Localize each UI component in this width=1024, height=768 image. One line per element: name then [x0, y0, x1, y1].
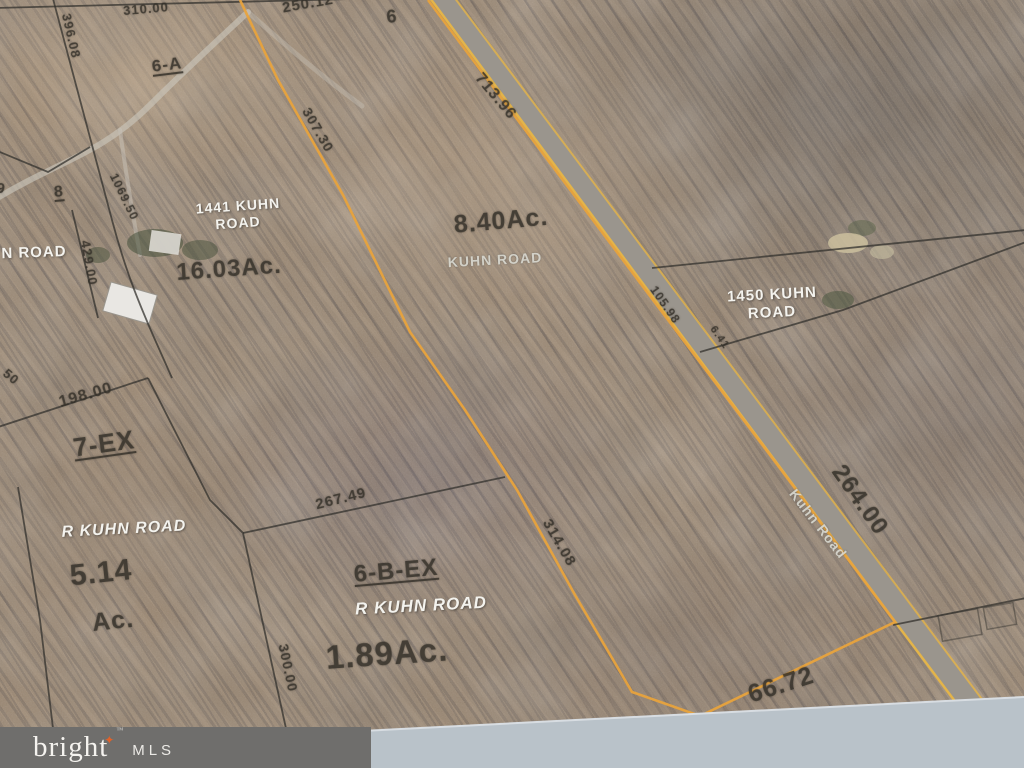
area-1-89-ac: 1.89Ac. [325, 632, 450, 675]
dim-250-12: 250.12 [281, 0, 335, 16]
dim-300-00: 300.00 [276, 643, 301, 694]
road-kuhn-road-label: Kuhn Road [786, 487, 849, 562]
road-n-road-left: N ROAD [1, 244, 67, 262]
dim-307-30: 307.30 [299, 105, 336, 155]
lot-6: 6 [386, 7, 399, 27]
dim-1069-50: 1069.50 [107, 172, 140, 223]
area-5-14: 5.14 [68, 554, 133, 592]
addr-1441-kuhn: 1441 KUHN [195, 196, 280, 217]
dim-310-00: 310.00 [123, 0, 170, 18]
dim-6-41: 6.41 [707, 324, 731, 351]
area-16-03-ac: 16.03Ac. [176, 253, 283, 285]
dim-105-98: 105.98 [648, 284, 683, 326]
addr-1441-road: ROAD [215, 214, 261, 232]
dim-198-00: 198.00 [57, 380, 114, 411]
road-r-kuhn-road-west: R KUHN ROAD [61, 518, 186, 541]
lot-9: 9 [0, 180, 7, 197]
map-labels: 310.00396.08250.1266-A713.96307.30981069… [0, 0, 1024, 768]
dim-66-72: 66.72 [745, 662, 817, 708]
brightmls-watermark: bright✦™ MLS [0, 727, 371, 768]
dim-429-00: 429.00 [78, 239, 99, 286]
sparkle-icon: ✦ [104, 733, 115, 747]
road-kuhn-center: KUHN ROAD [447, 250, 542, 270]
addr-1450-road: ROAD [748, 304, 797, 322]
mls-text: MLS [132, 742, 175, 759]
dim-267-49: 267.49 [314, 485, 368, 513]
dim-50: 50 [0, 366, 21, 387]
lot-6-a: 6-A [151, 54, 183, 75]
trademark-symbol: ™ [116, 726, 124, 734]
lot-7-ex: 7-EX [71, 426, 136, 462]
dim-713-96: 713.96 [471, 71, 519, 124]
road-r-kuhn-road-south: R KUHN ROAD [355, 594, 488, 619]
brightmls-logo: bright✦™ [33, 733, 124, 762]
area-5-14-ac: Ac. [91, 606, 135, 636]
plat-map-screenshot: 310.00396.08250.1266-A713.96307.30981069… [0, 0, 1024, 768]
dim-314-08: 314.08 [539, 517, 579, 570]
dim-396-08: 396.08 [59, 12, 83, 60]
lot-8: 8 [53, 184, 64, 202]
area-8-40-ac: 8.40Ac. [453, 204, 549, 238]
brand-text: bright [33, 731, 108, 763]
dim-264-00: 264.00 [827, 460, 893, 539]
addr-1450-kuhn: 1450 KUHN [727, 285, 818, 305]
lot-6-b-ex: 6-B-EX [353, 555, 440, 587]
